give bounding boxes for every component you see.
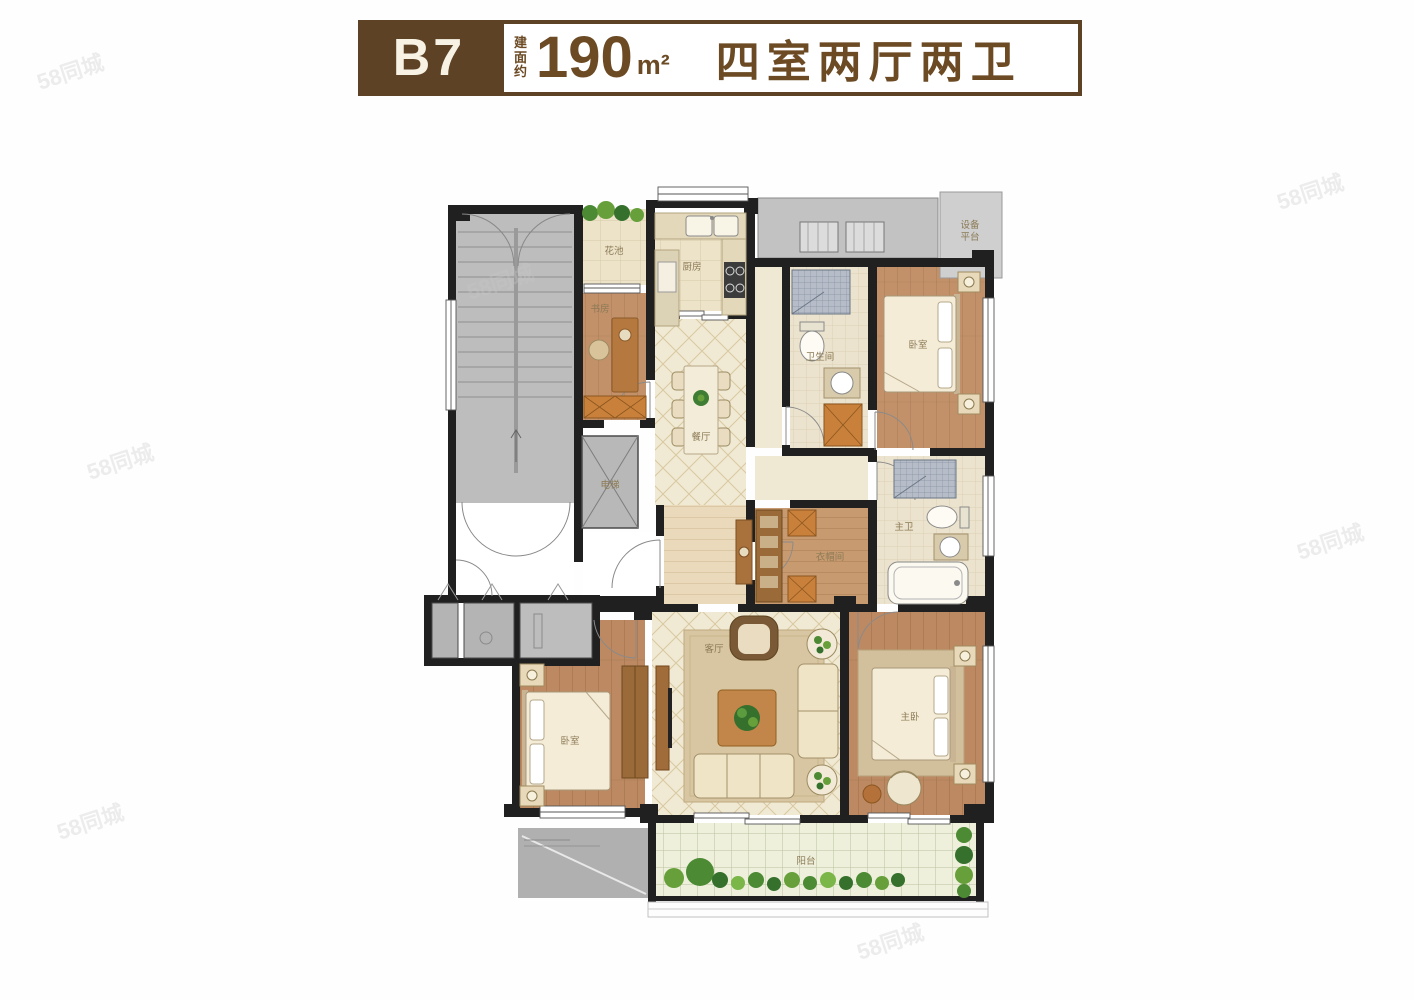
label-dining: 餐厅 [691,431,711,443]
tv-icon [668,688,672,748]
window-study [584,284,640,293]
ac-bay-icon [432,603,458,658]
svg-text:58同城: 58同城 [54,800,127,845]
window-stair-left [446,300,456,410]
stool-icon [863,785,881,803]
tv-cabinet-icon [656,666,669,770]
label-bath-guest: 卫生间 [806,351,835,363]
plant-cluster-icon [686,858,714,886]
corridor-vertical [755,267,782,448]
corridor-horizontal [755,456,868,500]
side-table-icon [807,629,837,659]
lobby [583,532,656,596]
desk-chair-icon [589,340,609,360]
label-kitchen: 厨房 [682,261,701,273]
label-elevator: 电梯 [600,479,620,491]
watermark-text: 58同城 [34,50,107,95]
shower-master-icon [894,460,956,498]
sink-icon [686,216,712,236]
svg-text:58同城: 58同城 [1294,520,1367,565]
lower-roof-area [518,828,648,898]
svg-text:58同城: 58同城 [854,920,927,965]
entry-console-icon [736,520,752,584]
window-bedroom-left [540,806,625,818]
label-flower-box: 花池 [604,245,624,257]
svg-text:58同城: 58同城 [84,440,157,485]
floor-plan-page: B7 建面约 190 m² 四室两厅两卫 [0,0,1414,1000]
basin-icon [831,372,853,394]
window-bedroom-top [983,298,994,402]
window-bath-master [983,476,994,556]
ac-unit-icon [800,222,838,252]
window-master-bedroom [983,646,994,782]
label-equipment-1: 设备 [960,219,980,231]
toilet-master-icon [927,506,957,528]
label-master-bedroom: 主卧 [900,711,920,723]
label-equipment-2: 平台 [960,231,979,243]
label-bath-master: 主卫 [894,521,914,533]
floor-plan-svg: 花池 书房 电梯 厨房 餐厅 卫生间 卧室 设备 平台 主卫 衣帽间 客厅 卧室… [0,0,1414,1000]
slider-kitchen-dining [678,311,728,320]
cabinet-icon [584,396,646,418]
label-living: 客厅 [704,643,724,655]
window-kitchen-bay [658,187,748,201]
stair-vestibule [456,503,574,597]
label-closet: 衣帽间 [816,551,845,563]
label-bedroom-left: 卧室 [560,735,579,747]
label-balcony: 阳台 [796,855,815,867]
svg-text:58同城: 58同城 [1274,170,1347,215]
label-bedroom-top: 卧室 [908,339,927,351]
balcony-outer-sill [648,902,988,917]
label-study: 书房 [590,303,609,315]
entry-hall [664,505,746,604]
counter-board [658,262,676,292]
shower-icon [792,270,850,314]
